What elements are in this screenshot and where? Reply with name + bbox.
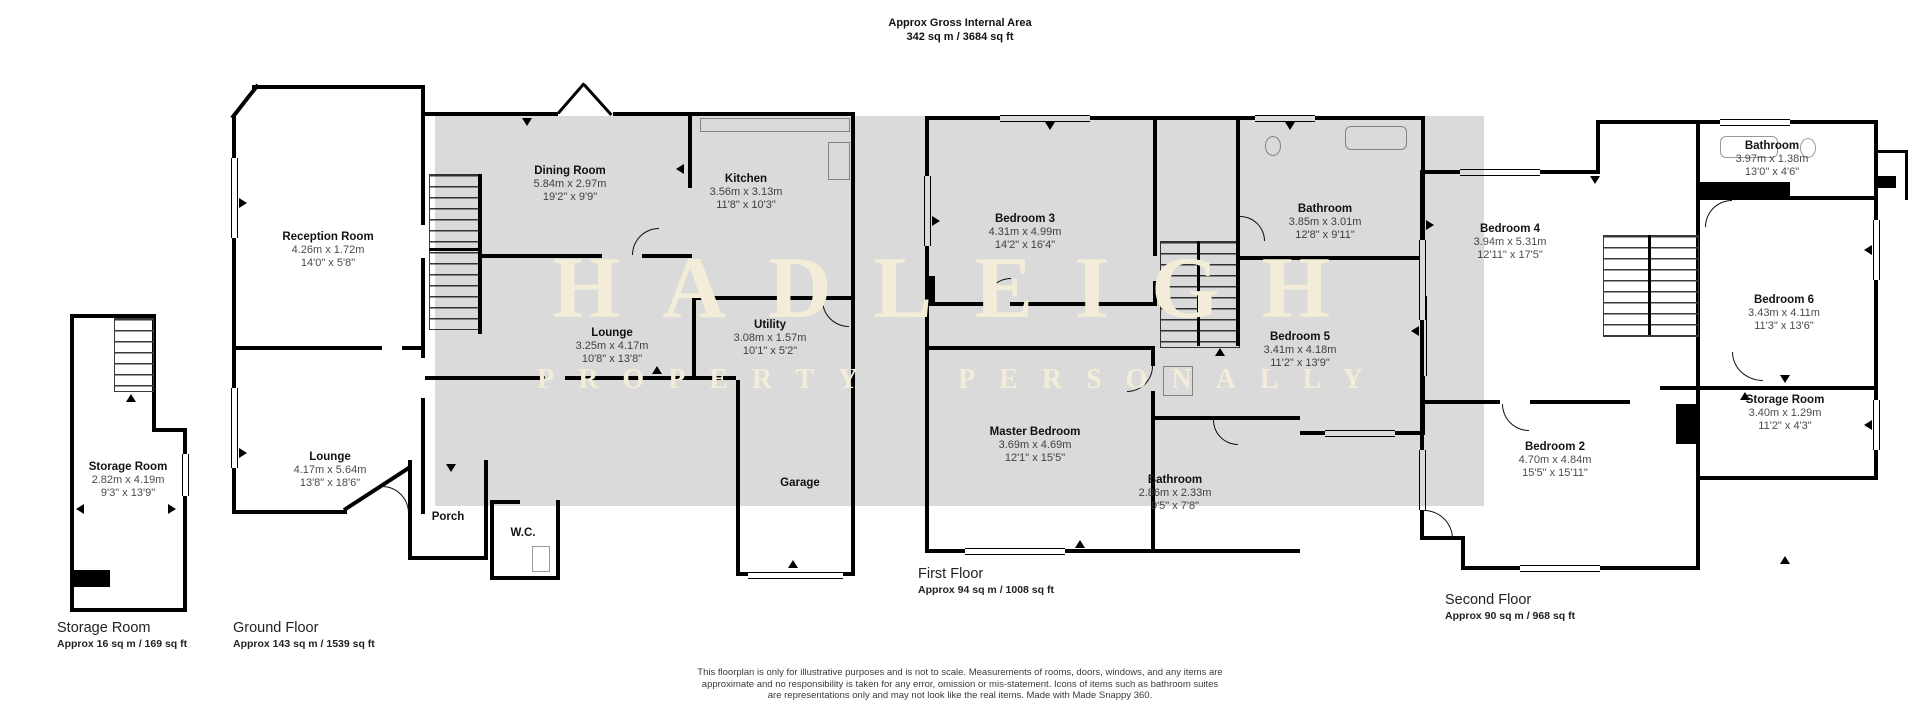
- floor-label-second: Second Floor Approx 90 sq m / 968 sq ft: [1445, 592, 1575, 623]
- room-label-bedroom2: Bedroom 2 4.70m x 4.84m 15'5" x 15'11": [1519, 440, 1592, 480]
- door-arc: [1127, 366, 1153, 392]
- window: [1720, 119, 1790, 126]
- room-name: Bedroom 6: [1748, 293, 1820, 307]
- wall: [1660, 386, 1878, 390]
- second-floor-building: Bedroom 4 3.94m x 5.31m 12'11" x 17'5" B…: [1420, 120, 1915, 580]
- wall: [490, 500, 494, 580]
- room-label-wc: W.C.: [511, 526, 536, 540]
- room-metric: 2.86m x 2.33m: [1139, 487, 1212, 500]
- room-name: Lounge: [576, 326, 649, 340]
- door-marker: [1045, 122, 1055, 130]
- room-imperial: 12'1" x 15'5": [990, 452, 1081, 465]
- door-marker: [446, 464, 456, 472]
- stair-arrow-icon: [126, 394, 136, 402]
- stair-divider: [1648, 235, 1651, 335]
- wall: [1461, 536, 1465, 570]
- window: [965, 548, 1065, 555]
- disclaimer: This floorplan is only for illustrative …: [697, 667, 1222, 702]
- ground-floor-building: Reception Room 4.26m x 1.72m 14'0" x 5'8…: [232, 78, 877, 593]
- room-imperial: 11'8" x 10'3": [710, 199, 783, 212]
- room-imperial: 13'8" x 18'6": [294, 477, 367, 490]
- room-imperial: 11'2" x 13'9": [1264, 357, 1337, 370]
- room-imperial: 12'8" x 9'11": [1289, 229, 1362, 242]
- wall: [421, 85, 425, 225]
- garage-door: [748, 572, 843, 579]
- room-label-lounge-mid: Lounge 3.25m x 4.17m 10'8" x 13'8": [576, 326, 649, 366]
- room-label-bathroom-f1b: Bathroom 2.86m x 2.33m 9'5" x 7'8": [1139, 473, 1212, 513]
- door-marker: [1864, 420, 1872, 430]
- room-metric: 3.25m x 4.17m: [576, 340, 649, 353]
- wall-block: [1700, 182, 1790, 200]
- wall: [402, 346, 425, 350]
- room-metric: 3.41m x 4.18m: [1264, 344, 1337, 357]
- room-label-bathroom-f2: Bathroom 3.97m x 1.38m 13'0" x 4'6": [1736, 139, 1809, 179]
- window: [1419, 240, 1426, 320]
- disclaimer-line: approximate and no responsibility is tak…: [697, 679, 1222, 691]
- wall: [557, 82, 586, 114]
- sink-icon: [532, 546, 550, 572]
- room-metric: 5.84m x 2.97m: [534, 178, 607, 191]
- room-label-garage: Garage: [780, 476, 820, 490]
- gross-area-value: 342 sq m / 3684 sq ft: [888, 31, 1031, 45]
- staircase: [1160, 241, 1240, 348]
- room-imperial: 10'1" x 5'2": [734, 345, 807, 358]
- window: [1873, 220, 1880, 280]
- chimney-block: [925, 276, 935, 306]
- door-arc: [632, 228, 659, 255]
- room-name: Porch: [432, 510, 465, 524]
- room-metric: 3.69m x 4.69m: [990, 439, 1081, 452]
- wall: [1153, 116, 1157, 256]
- door-arc: [1424, 510, 1453, 539]
- wall: [490, 576, 560, 580]
- door-marker: [932, 216, 940, 226]
- wall: [583, 83, 613, 115]
- room-metric: 3.97m x 1.38m: [1736, 153, 1809, 166]
- window: [1460, 169, 1540, 176]
- wall: [1905, 150, 1908, 200]
- room-metric: 3.08m x 1.57m: [734, 332, 807, 345]
- wall: [484, 460, 488, 560]
- chimney-block: [72, 570, 110, 587]
- window: [1873, 400, 1880, 450]
- wall: [232, 510, 347, 514]
- wall: [1878, 150, 1908, 153]
- room-name: Garage: [780, 476, 820, 490]
- wall: [408, 556, 488, 560]
- room-metric: 2.82m x 4.19m: [89, 474, 168, 487]
- wall: [152, 428, 187, 432]
- room-imperial: 13'0" x 4'6": [1736, 166, 1809, 179]
- first-floor-building: Bedroom 3 4.31m x 4.99m 14'2" x 16'4" Ba…: [925, 116, 1430, 561]
- room-name: Lounge: [294, 450, 367, 464]
- door-marker: [168, 504, 176, 514]
- room-metric: 3.56m x 3.13m: [710, 186, 783, 199]
- stair-divider: [1197, 241, 1200, 346]
- door-arc: [382, 486, 409, 513]
- gross-area-header: Approx Gross Internal Area 342 sq m / 36…: [888, 17, 1031, 44]
- room-label-utility: Utility 3.08m x 1.57m 10'1" x 5'2": [734, 318, 807, 358]
- wall: [490, 500, 520, 504]
- room-label-bedroom6: Bedroom 6 3.43m x 4.11m 11'3" x 13'6": [1748, 293, 1820, 333]
- room-label-bedroom5: Bedroom 5 3.41m x 4.18m 11'2" x 13'9": [1264, 330, 1337, 370]
- room-imperial: 11'3" x 13'6": [1748, 320, 1820, 333]
- wall: [232, 346, 382, 350]
- room-name: Bedroom 3: [989, 212, 1062, 226]
- window: [182, 454, 189, 496]
- wall: [70, 314, 74, 612]
- room-name: Master Bedroom: [990, 425, 1081, 439]
- staircase: [1603, 235, 1699, 337]
- counter-icon: [700, 118, 850, 132]
- room-metric: 3.43m x 4.11m: [1748, 307, 1820, 320]
- room-label-porch: Porch: [432, 510, 465, 524]
- shower-icon: [1163, 366, 1193, 396]
- storage-building: Storage Room 2.82m x 4.19m 9'3" x 13'9": [68, 314, 193, 614]
- door-arc: [1213, 420, 1238, 445]
- wall: [425, 112, 558, 116]
- door-marker: [1285, 122, 1295, 130]
- wall: [1010, 302, 1157, 306]
- disclaimer-line: This floorplan is only for illustrative …: [697, 667, 1222, 679]
- door-arc: [1240, 216, 1265, 241]
- wall: [425, 376, 545, 380]
- room-metric: 4.26m x 1.72m: [282, 244, 373, 257]
- room-imperial: 11'2" x 4'3": [1746, 420, 1825, 433]
- room-name: Bathroom: [1736, 139, 1809, 153]
- floor-label-storage: Storage Room Approx 16 sq m / 169 sq ft: [57, 620, 187, 651]
- door-arc: [1732, 352, 1763, 381]
- floor-title: First Floor: [918, 566, 1054, 583]
- room-label-kitchen: Kitchen 3.56m x 3.13m 11'8" x 10'3": [710, 172, 783, 212]
- door-marker: [76, 504, 84, 514]
- room-metric: 3.40m x 1.29m: [1746, 407, 1825, 420]
- door-marker: [652, 366, 662, 374]
- floor-label-first: First Floor Approx 94 sq m / 1008 sq ft: [918, 566, 1054, 597]
- wall: [851, 112, 855, 576]
- wall-block: [1878, 176, 1896, 188]
- wall: [556, 500, 560, 580]
- wall: [613, 112, 855, 116]
- room-name: Storage Room: [1746, 393, 1825, 407]
- wall: [1240, 256, 1425, 260]
- room-metric: 3.94m x 5.31m: [1474, 236, 1547, 249]
- room-imperial: 12'11" x 17'5": [1474, 249, 1547, 262]
- wall: [1700, 476, 1878, 480]
- room-imperial: 9'3" x 13'9": [89, 487, 168, 500]
- door-marker: [1864, 245, 1872, 255]
- window: [1000, 115, 1090, 122]
- room-metric: 4.31m x 4.99m: [989, 226, 1062, 239]
- wall: [565, 376, 736, 380]
- room-name: Utility: [734, 318, 807, 332]
- wall: [1696, 390, 1700, 570]
- wall: [421, 258, 425, 358]
- wall: [688, 112, 692, 188]
- room-name: Dining Room: [534, 164, 607, 178]
- room-imperial: 19'2" x 9'9": [534, 191, 607, 204]
- room-label-master: Master Bedroom 3.69m x 4.69m 12'1" x 15'…: [990, 425, 1081, 465]
- room-label-bedroom4: Bedroom 4 3.94m x 5.31m 12'11" x 17'5": [1474, 222, 1547, 262]
- wall: [70, 608, 187, 612]
- room-name: Bedroom 2: [1519, 440, 1592, 454]
- door-marker: [239, 198, 247, 208]
- door-marker: [1780, 375, 1790, 383]
- floor-area: Approx 94 sq m / 1008 sq ft: [918, 583, 1054, 597]
- door-marker: [239, 448, 247, 458]
- room-label-lounge-front: Lounge 4.17m x 5.64m 13'8" x 18'6": [294, 450, 367, 490]
- room-imperial: 14'0" x 5'8": [282, 257, 373, 270]
- floor-label-ground: Ground Floor Approx 143 sq m / 1539 sq f…: [233, 620, 375, 651]
- door-marker: [1426, 220, 1434, 230]
- floor-title: Second Floor: [1445, 592, 1575, 609]
- room-name: Bedroom 4: [1474, 222, 1547, 236]
- wall: [692, 296, 696, 380]
- room-name: Bathroom: [1139, 473, 1212, 487]
- room-label-bedroom3: Bedroom 3 4.31m x 4.99m 14'2" x 16'4": [989, 212, 1062, 252]
- wall: [252, 85, 425, 89]
- toilet-icon: [1265, 136, 1281, 156]
- window: [231, 388, 238, 468]
- room-imperial: 15'5" x 15'11": [1519, 467, 1592, 480]
- room-imperial: 10'8" x 13'8": [576, 353, 649, 366]
- room-label-storage-f2: Storage Room 3.40m x 1.29m 11'2" x 4'3": [1746, 393, 1825, 433]
- appliance-icon: [828, 142, 850, 180]
- staircase: [114, 318, 154, 392]
- door-marker: [788, 560, 798, 568]
- room-metric: 3.85m x 3.01m: [1289, 216, 1362, 229]
- window: [1325, 430, 1395, 437]
- room-name: Bathroom: [1289, 202, 1362, 216]
- window: [231, 158, 238, 238]
- bath-icon: [1345, 126, 1407, 150]
- door-marker: [676, 164, 684, 174]
- room-name: Reception Room: [282, 230, 373, 244]
- wall: [482, 254, 602, 258]
- room-label-reception: Reception Room 4.26m x 1.72m 14'0" x 5'8…: [282, 230, 373, 270]
- floor-title: Ground Floor: [233, 620, 375, 637]
- wall: [478, 174, 482, 334]
- stair-divider: [429, 248, 478, 251]
- floor-title: Storage Room: [57, 620, 187, 637]
- door-marker: [1411, 326, 1419, 336]
- door-marker: [1075, 540, 1085, 548]
- door-arc: [1502, 404, 1529, 431]
- wall: [1420, 400, 1500, 404]
- staircase: [429, 174, 480, 330]
- floor-area: Approx 143 sq m / 1539 sq ft: [233, 637, 375, 651]
- wall: [1151, 350, 1155, 366]
- door-marker: [1780, 556, 1790, 564]
- room-name: Storage Room: [89, 460, 168, 474]
- room-metric: 4.17m x 5.64m: [294, 464, 367, 477]
- window: [924, 176, 931, 246]
- room-label-storage-left: Storage Room 2.82m x 4.19m 9'3" x 13'9": [89, 460, 168, 500]
- door-arc: [1705, 200, 1732, 227]
- door-arc: [822, 300, 849, 327]
- disclaimer-line: are representations only and may not loo…: [697, 690, 1222, 702]
- room-name: W.C.: [511, 526, 536, 540]
- window: [1255, 115, 1315, 122]
- room-label-bathroom-f1: Bathroom 3.85m x 3.01m 12'8" x 9'11": [1289, 202, 1362, 242]
- room-imperial: 14'2" x 16'4": [989, 239, 1062, 252]
- door-marker: [1590, 176, 1600, 184]
- wall: [736, 380, 740, 576]
- wall: [1596, 120, 1600, 174]
- door-marker: [1215, 348, 1225, 356]
- window: [1419, 450, 1426, 510]
- room-metric: 4.70m x 4.84m: [1519, 454, 1592, 467]
- floor-area: Approx 90 sq m / 968 sq ft: [1445, 609, 1575, 623]
- room-name: Bedroom 5: [1264, 330, 1337, 344]
- room-label-dining: Dining Room 5.84m x 2.97m 19'2" x 9'9": [534, 164, 607, 204]
- room-name: Kitchen: [710, 172, 783, 186]
- door-arc: [985, 278, 1011, 304]
- window: [1520, 565, 1600, 572]
- wall: [925, 346, 1155, 350]
- wall: [1530, 400, 1630, 404]
- gross-area-title: Approx Gross Internal Area: [888, 17, 1031, 31]
- floor-area: Approx 16 sq m / 169 sq ft: [57, 637, 187, 651]
- door-marker: [522, 118, 532, 126]
- floorplan-canvas: Approx Gross Internal Area 342 sq m / 36…: [0, 0, 1920, 708]
- wall: [421, 398, 425, 514]
- room-imperial: 9'5" x 7'8": [1139, 500, 1212, 513]
